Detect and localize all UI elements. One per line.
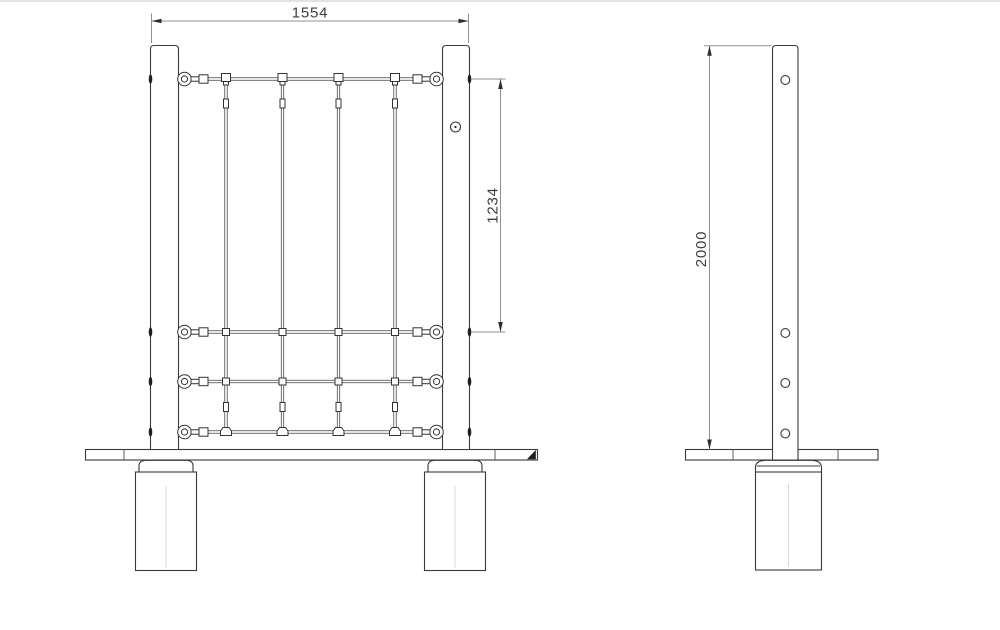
front-ground-plate: [86, 450, 538, 461]
post-height-label: 2000: [693, 231, 710, 268]
eyebolt-terminations: [149, 72, 472, 439]
side-footing: [756, 460, 822, 570]
side-post: [773, 46, 799, 461]
side-view: 2000: [686, 46, 879, 571]
overall-width-label: 1554: [292, 5, 329, 22]
front-view: 1554 1234: [86, 5, 538, 571]
net-ropes: [208, 79, 414, 432]
front-left-footing: [136, 460, 197, 570]
front-left-post: [151, 46, 179, 450]
front-right-footing: [425, 460, 486, 570]
drawing-canvas: 1554 1234: [0, 2, 1000, 630]
technical-drawing-page: 1554 1234: [0, 0, 1000, 628]
dimension-post-height: 2000: [693, 46, 772, 450]
front-right-post: [443, 46, 470, 450]
dimension-net-height: 1234: [471, 79, 506, 332]
dimension-overall-width: 1554: [152, 5, 469, 44]
net-height-label: 1234: [485, 187, 502, 224]
